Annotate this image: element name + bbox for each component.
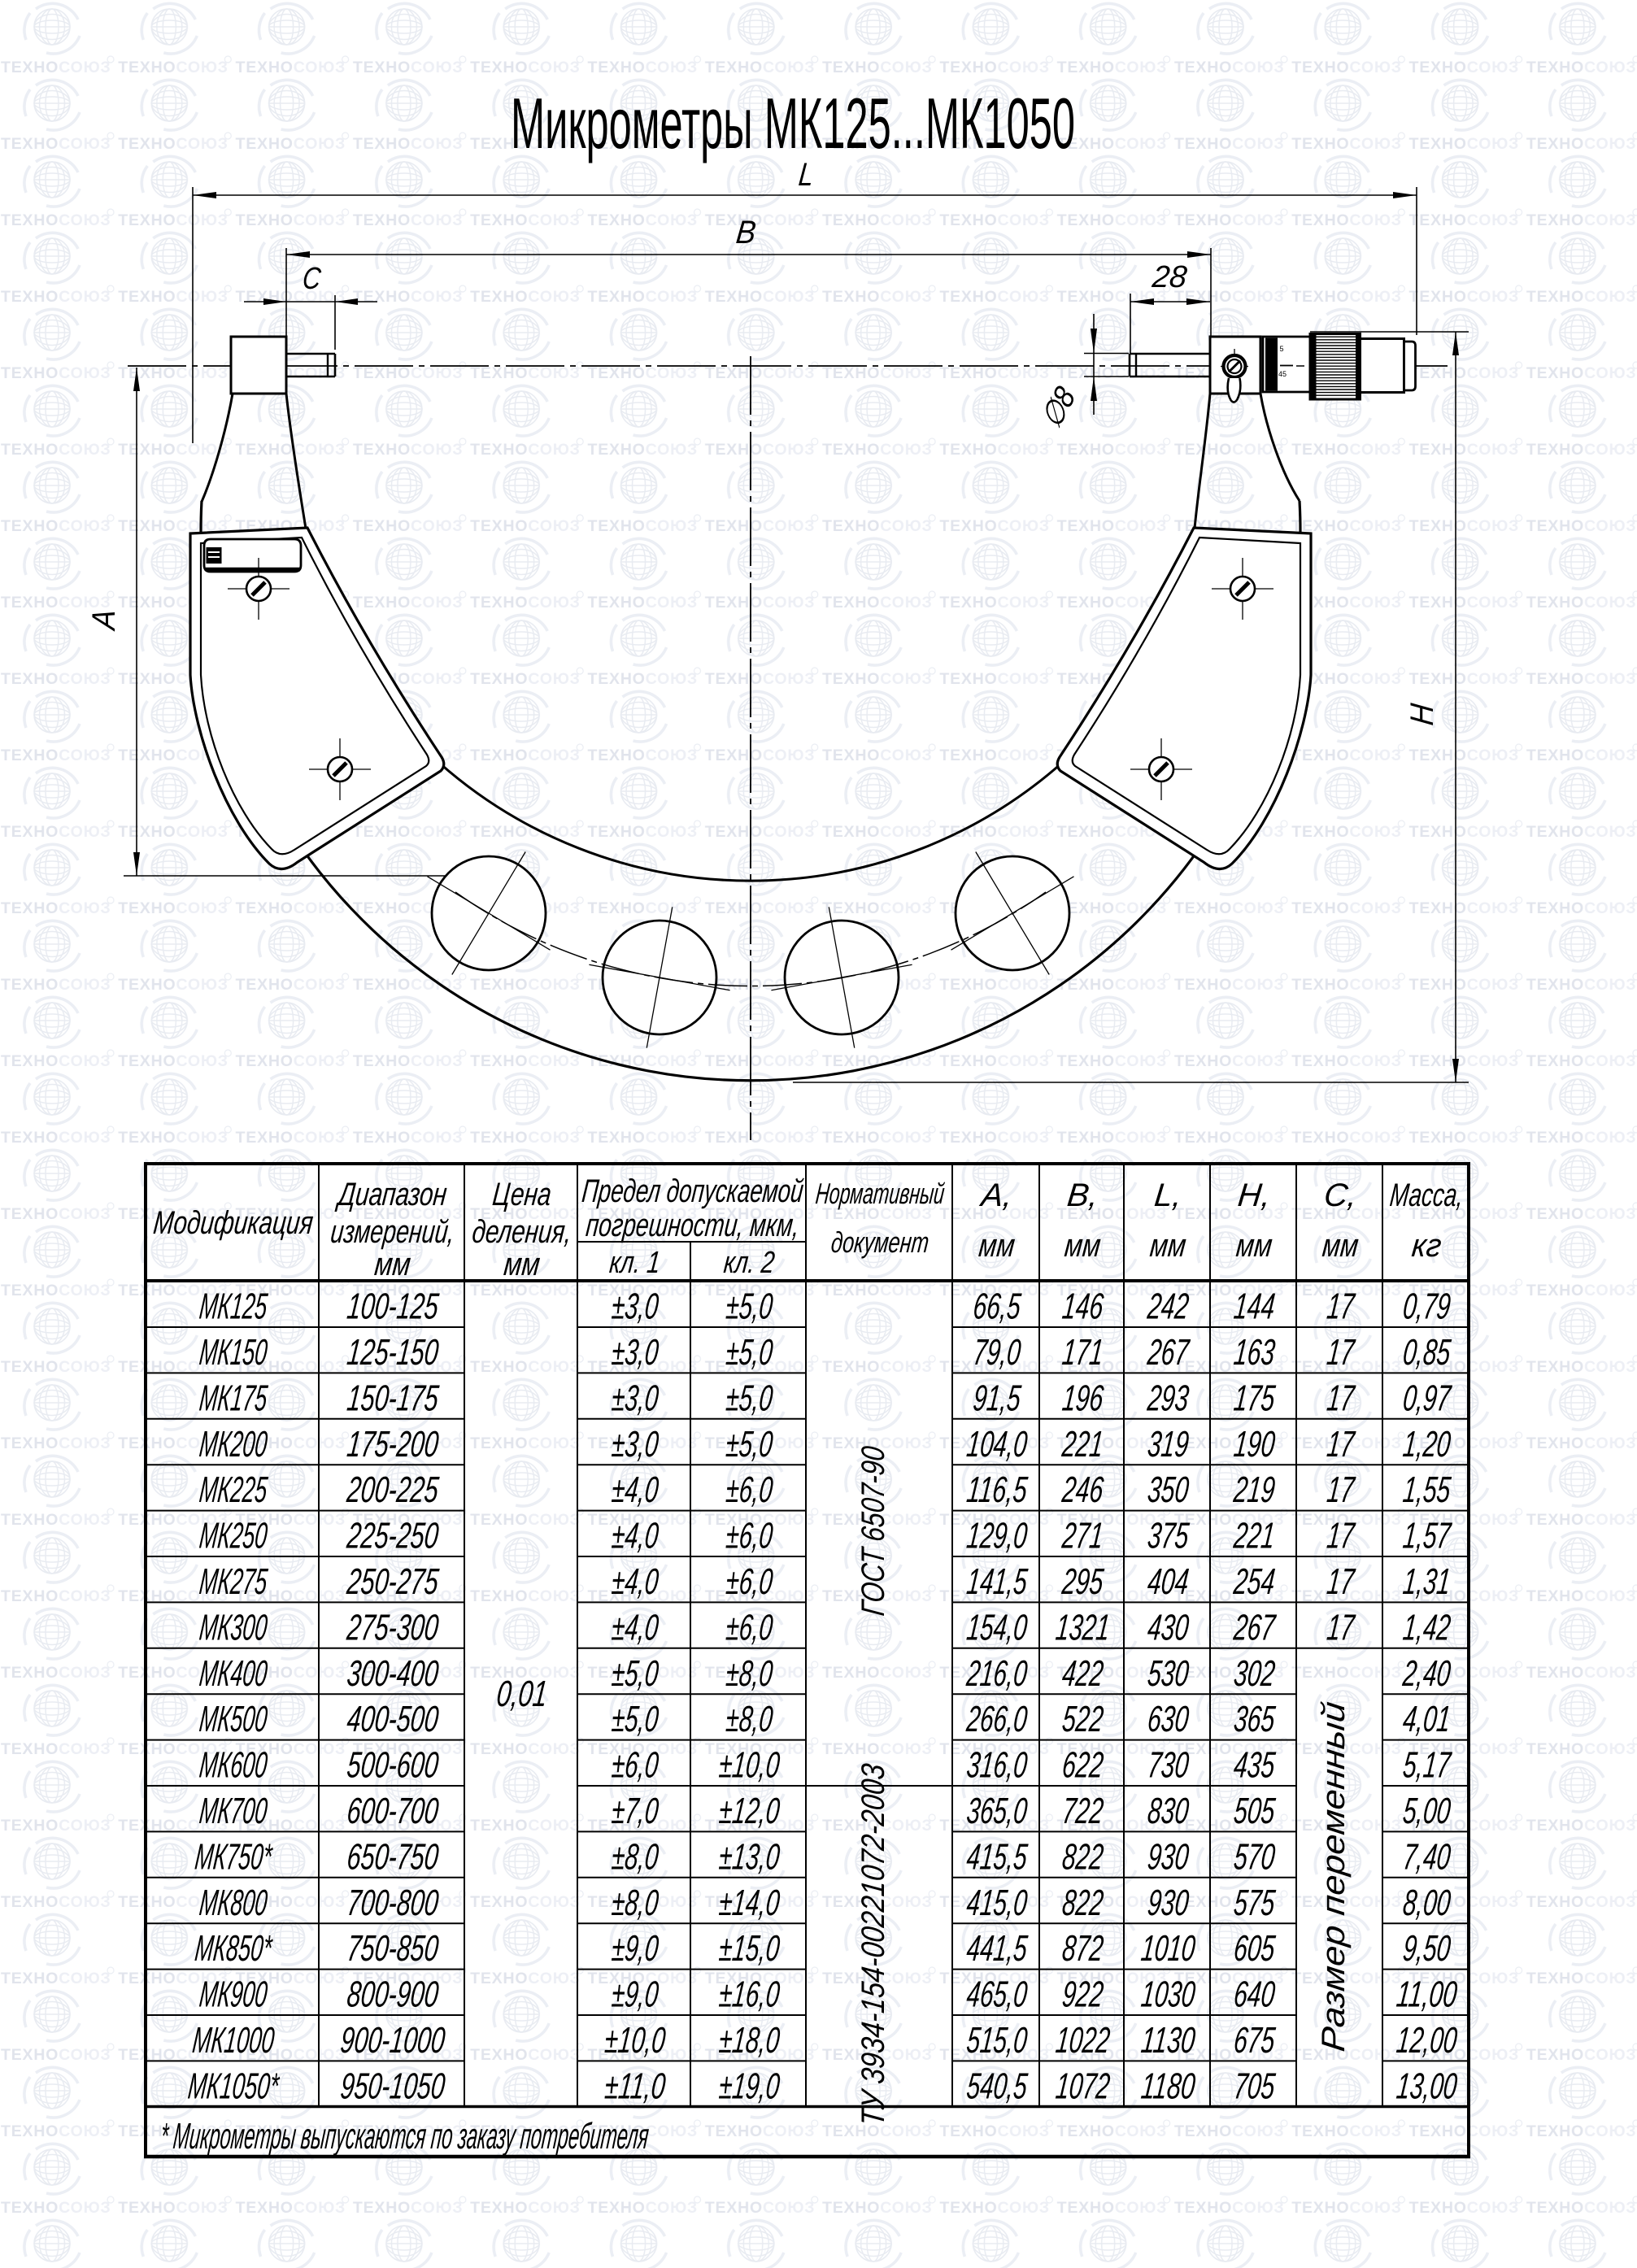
- svg-text:Предел допускаемой: Предел допускаемой: [581, 1173, 806, 1209]
- svg-text:деления,: деления,: [471, 1214, 574, 1250]
- svg-text:±12,0: ±12,0: [717, 1790, 781, 1831]
- svg-text:146: 146: [1060, 1286, 1106, 1327]
- svg-text:365,0: 365,0: [964, 1790, 1029, 1831]
- svg-text:17: 17: [1325, 1515, 1357, 1556]
- svg-text:246: 246: [1060, 1469, 1106, 1510]
- svg-text:13,00: 13,00: [1395, 2066, 1459, 2107]
- svg-text:17: 17: [1325, 1286, 1357, 1327]
- svg-text:650-750: 650-750: [345, 1836, 440, 1878]
- svg-text:5,17: 5,17: [1401, 1744, 1454, 1786]
- svg-text:45: 45: [1278, 370, 1287, 378]
- svg-text:кл. 2: кл. 2: [722, 1246, 776, 1280]
- svg-text:822: 822: [1060, 1836, 1105, 1878]
- svg-text:L,: L,: [1152, 1178, 1183, 1213]
- svg-text:319: 319: [1146, 1423, 1191, 1465]
- svg-text:МК250: МК250: [198, 1515, 269, 1556]
- svg-text:750-850: 750-850: [345, 1927, 440, 1969]
- svg-text:129,0: 129,0: [964, 1515, 1029, 1556]
- svg-text:1,55: 1,55: [1401, 1469, 1453, 1510]
- svg-text:622: 622: [1060, 1744, 1105, 1786]
- svg-text:600-700: 600-700: [345, 1790, 440, 1831]
- svg-text:0,97: 0,97: [1401, 1378, 1454, 1419]
- svg-text:1321: 1321: [1054, 1607, 1112, 1648]
- svg-text:0,85: 0,85: [1401, 1331, 1453, 1373]
- svg-text:МК1050*: МК1050*: [186, 2066, 281, 2107]
- svg-text:1,42: 1,42: [1401, 1607, 1452, 1648]
- svg-text:175: 175: [1232, 1378, 1278, 1419]
- svg-text:±16,0: ±16,0: [717, 1974, 781, 2015]
- svg-text:415,5: 415,5: [964, 1836, 1030, 1878]
- svg-text:221: 221: [1231, 1515, 1277, 1556]
- svg-text:±6,0: ±6,0: [724, 1607, 774, 1648]
- svg-text:1072: 1072: [1054, 2066, 1112, 2107]
- svg-text:±8,0: ±8,0: [610, 1882, 660, 1923]
- svg-text:266,0: 266,0: [964, 1698, 1030, 1739]
- svg-text:кг: кг: [1410, 1228, 1443, 1264]
- svg-text:МК275: МК275: [198, 1561, 270, 1602]
- svg-text:404: 404: [1146, 1561, 1191, 1602]
- svg-text:293: 293: [1145, 1378, 1191, 1419]
- svg-text:515,0: 515,0: [964, 2019, 1029, 2061]
- svg-text:мм: мм: [977, 1228, 1017, 1264]
- svg-text:17: 17: [1325, 1423, 1357, 1465]
- svg-text:441,5: 441,5: [964, 1927, 1030, 1969]
- svg-text:МК500: МК500: [198, 1698, 269, 1739]
- svg-text:1022: 1022: [1054, 2019, 1112, 2061]
- svg-text:930: 930: [1146, 1882, 1191, 1923]
- svg-text:мм: мм: [373, 1247, 413, 1282]
- svg-text:316,0: 316,0: [964, 1744, 1029, 1786]
- svg-text:±19,0: ±19,0: [717, 2066, 781, 2107]
- svg-text:±4,0: ±4,0: [610, 1607, 660, 1648]
- svg-text:267: 267: [1231, 1607, 1278, 1648]
- svg-text:±6,0: ±6,0: [610, 1744, 660, 1786]
- svg-text:МК900: МК900: [198, 1974, 269, 2015]
- svg-text:7,40: 7,40: [1401, 1836, 1452, 1878]
- svg-text:700-800: 700-800: [345, 1882, 440, 1923]
- svg-text:МК300: МК300: [198, 1607, 269, 1648]
- svg-text:302: 302: [1232, 1652, 1277, 1694]
- svg-text:±3,0: ±3,0: [610, 1331, 660, 1373]
- svg-text:±5,0: ±5,0: [724, 1331, 774, 1373]
- svg-text:435: 435: [1232, 1744, 1278, 1786]
- svg-text:171: 171: [1060, 1331, 1105, 1373]
- svg-text:±8,0: ±8,0: [610, 1836, 660, 1878]
- svg-text:640: 640: [1232, 1974, 1277, 2015]
- svg-text:175-200: 175-200: [345, 1423, 440, 1465]
- svg-text:200-225: 200-225: [345, 1469, 442, 1510]
- svg-text:190: 190: [1232, 1423, 1277, 1465]
- svg-text:мм: мм: [1148, 1228, 1188, 1264]
- svg-text:погрешности, мкм,: погрешности, мкм,: [585, 1208, 802, 1243]
- svg-text:±14,0: ±14,0: [717, 1882, 781, 1923]
- svg-text:267: 267: [1145, 1331, 1191, 1373]
- svg-text:±3,0: ±3,0: [610, 1378, 660, 1419]
- svg-text:1,20: 1,20: [1401, 1423, 1452, 1465]
- svg-text:4,01: 4,01: [1401, 1698, 1452, 1739]
- svg-text:±5,0: ±5,0: [724, 1378, 774, 1419]
- svg-text:375: 375: [1146, 1515, 1191, 1556]
- svg-text:730: 730: [1146, 1744, 1191, 1786]
- svg-text:422: 422: [1060, 1652, 1105, 1694]
- svg-text:575: 575: [1232, 1882, 1278, 1923]
- svg-text:Размер переменный: Размер переменный: [1316, 1700, 1352, 2053]
- svg-text:1130: 1130: [1139, 2019, 1197, 2061]
- svg-text:H: H: [1404, 702, 1440, 727]
- svg-text:±8,0: ±8,0: [724, 1698, 774, 1739]
- svg-text:350: 350: [1146, 1469, 1191, 1510]
- svg-text:документ: документ: [829, 1225, 930, 1259]
- svg-text:0,01: 0,01: [494, 1673, 549, 1714]
- svg-text:17: 17: [1325, 1331, 1357, 1373]
- svg-text:365: 365: [1232, 1698, 1278, 1739]
- svg-text:Диапазон: Диапазон: [334, 1177, 449, 1212]
- svg-text:163: 163: [1232, 1331, 1277, 1373]
- svg-text:±6,0: ±6,0: [724, 1469, 774, 1510]
- svg-text:±8,0: ±8,0: [724, 1652, 774, 1694]
- svg-text:150-175: 150-175: [345, 1378, 441, 1419]
- svg-text:МК750*: МК750*: [193, 1836, 274, 1878]
- svg-text:522: 522: [1060, 1698, 1105, 1739]
- svg-text:242: 242: [1145, 1286, 1191, 1327]
- svg-text:922: 922: [1060, 1974, 1105, 2015]
- svg-text:МК700: МК700: [198, 1790, 269, 1831]
- svg-text:104,0: 104,0: [964, 1423, 1029, 1465]
- svg-text:МК600: МК600: [198, 1744, 269, 1786]
- svg-text:±5,0: ±5,0: [610, 1652, 660, 1694]
- svg-text:Масса,: Масса,: [1388, 1178, 1465, 1213]
- svg-text:1180: 1180: [1139, 2066, 1197, 2107]
- svg-text:66,5: 66,5: [971, 1286, 1023, 1327]
- svg-text:кл. 1: кл. 1: [608, 1246, 662, 1280]
- svg-text:МК400: МК400: [198, 1652, 269, 1694]
- svg-text:530: 530: [1146, 1652, 1191, 1694]
- svg-text:830: 830: [1146, 1790, 1191, 1831]
- svg-text:±9,0: ±9,0: [610, 1974, 660, 2015]
- svg-text:2,40: 2,40: [1400, 1652, 1452, 1694]
- svg-text:5,00: 5,00: [1401, 1790, 1452, 1831]
- svg-text:630: 630: [1146, 1698, 1191, 1739]
- svg-text:722: 722: [1060, 1790, 1105, 1831]
- svg-text:950-1050: 950-1050: [338, 2066, 446, 2107]
- svg-text:17: 17: [1325, 1607, 1357, 1648]
- svg-text:Цена: Цена: [491, 1177, 554, 1212]
- svg-text:±11,0: ±11,0: [603, 2066, 667, 2107]
- svg-text:125-150: 125-150: [345, 1331, 440, 1373]
- svg-text:Нормативный: Нормативный: [814, 1177, 946, 1210]
- svg-text:±6,0: ±6,0: [724, 1515, 774, 1556]
- svg-text:141,5: 141,5: [964, 1561, 1030, 1602]
- svg-text:17: 17: [1325, 1469, 1357, 1510]
- svg-text:±6,0: ±6,0: [724, 1561, 774, 1602]
- svg-text:ТУ 3934-154-00221072-2003: ТУ 3934-154-00221072-2003: [856, 1762, 891, 2128]
- svg-text:800-900: 800-900: [345, 1974, 440, 2015]
- svg-text:872: 872: [1060, 1927, 1105, 1969]
- svg-text:1,31: 1,31: [1401, 1561, 1452, 1602]
- svg-text:С,: С,: [1322, 1178, 1359, 1213]
- svg-text:225-250: 225-250: [345, 1515, 441, 1556]
- svg-text:±18,0: ±18,0: [717, 2019, 781, 2061]
- svg-text:Модификация: Модификация: [152, 1205, 316, 1241]
- svg-text:А,: А,: [978, 1178, 1014, 1213]
- svg-text:МК175: МК175: [198, 1378, 270, 1419]
- svg-text:500-600: 500-600: [345, 1744, 440, 1786]
- svg-text:мм: мм: [1063, 1228, 1103, 1264]
- svg-text:295: 295: [1060, 1561, 1106, 1602]
- svg-text:8,00: 8,00: [1401, 1882, 1452, 1923]
- svg-text:±7,0: ±7,0: [610, 1790, 660, 1831]
- svg-text:250-275: 250-275: [345, 1561, 442, 1602]
- svg-text:±3,0: ±3,0: [610, 1423, 660, 1465]
- svg-text:144: 144: [1232, 1286, 1277, 1327]
- svg-text:465,0: 465,0: [964, 1974, 1029, 2015]
- svg-text:±5,0: ±5,0: [724, 1286, 774, 1327]
- svg-text:мм: мм: [1321, 1228, 1361, 1264]
- svg-text:0,79: 0,79: [1401, 1286, 1452, 1327]
- svg-text:±5,0: ±5,0: [724, 1423, 774, 1465]
- svg-text:1010: 1010: [1139, 1927, 1197, 1969]
- svg-text:271: 271: [1060, 1515, 1105, 1556]
- svg-text:116,5: 116,5: [964, 1469, 1030, 1510]
- svg-text:675: 675: [1232, 2019, 1278, 2061]
- svg-text:1030: 1030: [1139, 1974, 1197, 2015]
- svg-text:822: 822: [1060, 1882, 1105, 1923]
- svg-text:измерений,: измерений,: [329, 1214, 457, 1250]
- svg-text:±15,0: ±15,0: [717, 1927, 781, 1969]
- svg-text:221: 221: [1060, 1423, 1105, 1465]
- svg-text:МК850*: МК850*: [193, 1927, 274, 1969]
- svg-text:МК225: МК225: [198, 1469, 270, 1510]
- svg-text:300-400: 300-400: [345, 1652, 440, 1694]
- svg-text:В,: В,: [1065, 1178, 1099, 1213]
- svg-text:мм: мм: [503, 1247, 542, 1282]
- svg-text:79,0: 79,0: [971, 1331, 1022, 1373]
- svg-text:ГОСТ 6507-90: ГОСТ 6507-90: [856, 1444, 891, 1617]
- svg-text:196: 196: [1060, 1378, 1106, 1419]
- svg-text:540,5: 540,5: [964, 2066, 1030, 2107]
- svg-text:±4,0: ±4,0: [610, 1469, 660, 1510]
- svg-text:5: 5: [1279, 345, 1283, 353]
- svg-text:МК1000: МК1000: [190, 2019, 276, 2061]
- svg-text:570: 570: [1232, 1836, 1277, 1878]
- svg-text:400-500: 400-500: [345, 1698, 440, 1739]
- svg-text:Н,: Н,: [1236, 1178, 1273, 1213]
- svg-text:МК150: МК150: [198, 1331, 269, 1373]
- svg-text:Микрометры МК125...МК1050: Микрометры МК125...МК1050: [511, 83, 1075, 163]
- svg-text:±9,0: ±9,0: [610, 1927, 660, 1969]
- svg-text:B: B: [734, 215, 758, 250]
- svg-text:* Микрометры выпускаются по за: * Микрометры выпускаются по заказу потре…: [159, 2115, 651, 2157]
- svg-text:930: 930: [1146, 1836, 1191, 1878]
- svg-text:±13,0: ±13,0: [717, 1836, 781, 1878]
- svg-text:219: 219: [1231, 1469, 1277, 1510]
- svg-text:17: 17: [1325, 1561, 1357, 1602]
- svg-text:415,0: 415,0: [964, 1882, 1029, 1923]
- svg-text:900-1000: 900-1000: [338, 2019, 446, 2061]
- svg-text:±10,0: ±10,0: [717, 1744, 781, 1786]
- svg-text:430: 430: [1146, 1607, 1191, 1648]
- svg-text:275-300: 275-300: [345, 1607, 441, 1648]
- svg-text:МК125: МК125: [198, 1286, 270, 1327]
- svg-text:±3,0: ±3,0: [610, 1286, 660, 1327]
- svg-text:705: 705: [1232, 2066, 1278, 2107]
- svg-text:254: 254: [1231, 1561, 1277, 1602]
- svg-text:±5,0: ±5,0: [610, 1698, 660, 1739]
- svg-text:154,0: 154,0: [964, 1607, 1029, 1648]
- svg-text:мм: мм: [1234, 1228, 1274, 1264]
- svg-text:605: 605: [1232, 1927, 1278, 1969]
- svg-text:1,57: 1,57: [1401, 1515, 1454, 1556]
- svg-text:505: 505: [1232, 1790, 1278, 1831]
- svg-text:±4,0: ±4,0: [610, 1515, 660, 1556]
- svg-text:12,00: 12,00: [1395, 2019, 1459, 2061]
- svg-text:17: 17: [1325, 1378, 1357, 1419]
- svg-text:МК800: МК800: [198, 1882, 269, 1923]
- svg-text:±10,0: ±10,0: [603, 2019, 667, 2061]
- svg-text:±4,0: ±4,0: [610, 1561, 660, 1602]
- svg-text:100-125: 100-125: [345, 1286, 441, 1327]
- svg-text:91,5: 91,5: [971, 1378, 1023, 1419]
- svg-text:11,00: 11,00: [1395, 1974, 1459, 2015]
- svg-text:28: 28: [1150, 260, 1188, 294]
- svg-text:9,50: 9,50: [1401, 1927, 1452, 1969]
- svg-text:216,0: 216,0: [964, 1652, 1030, 1694]
- svg-text:МК200: МК200: [198, 1423, 269, 1465]
